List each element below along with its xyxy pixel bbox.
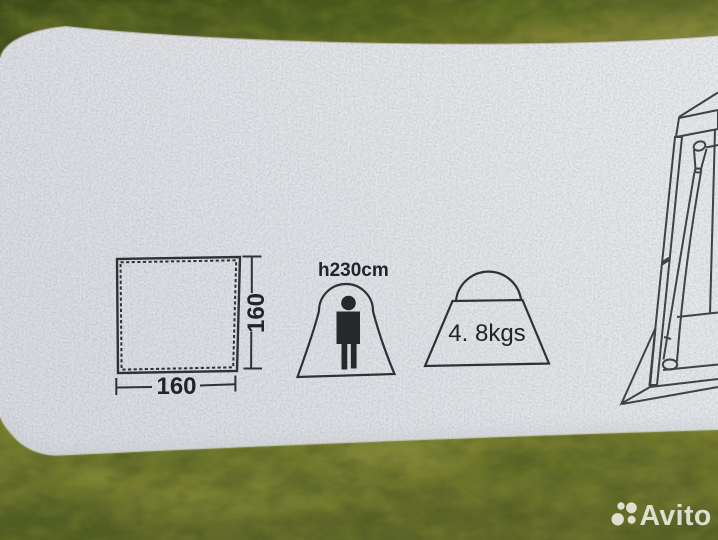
svg-text:160: 160 [243, 293, 270, 333]
svg-text:h230cm: h230cm [318, 260, 389, 281]
svg-text:160: 160 [156, 373, 196, 400]
svg-text:Avito: Avito [640, 500, 712, 532]
svg-text:4. 8kgs: 4. 8kgs [448, 320, 525, 347]
